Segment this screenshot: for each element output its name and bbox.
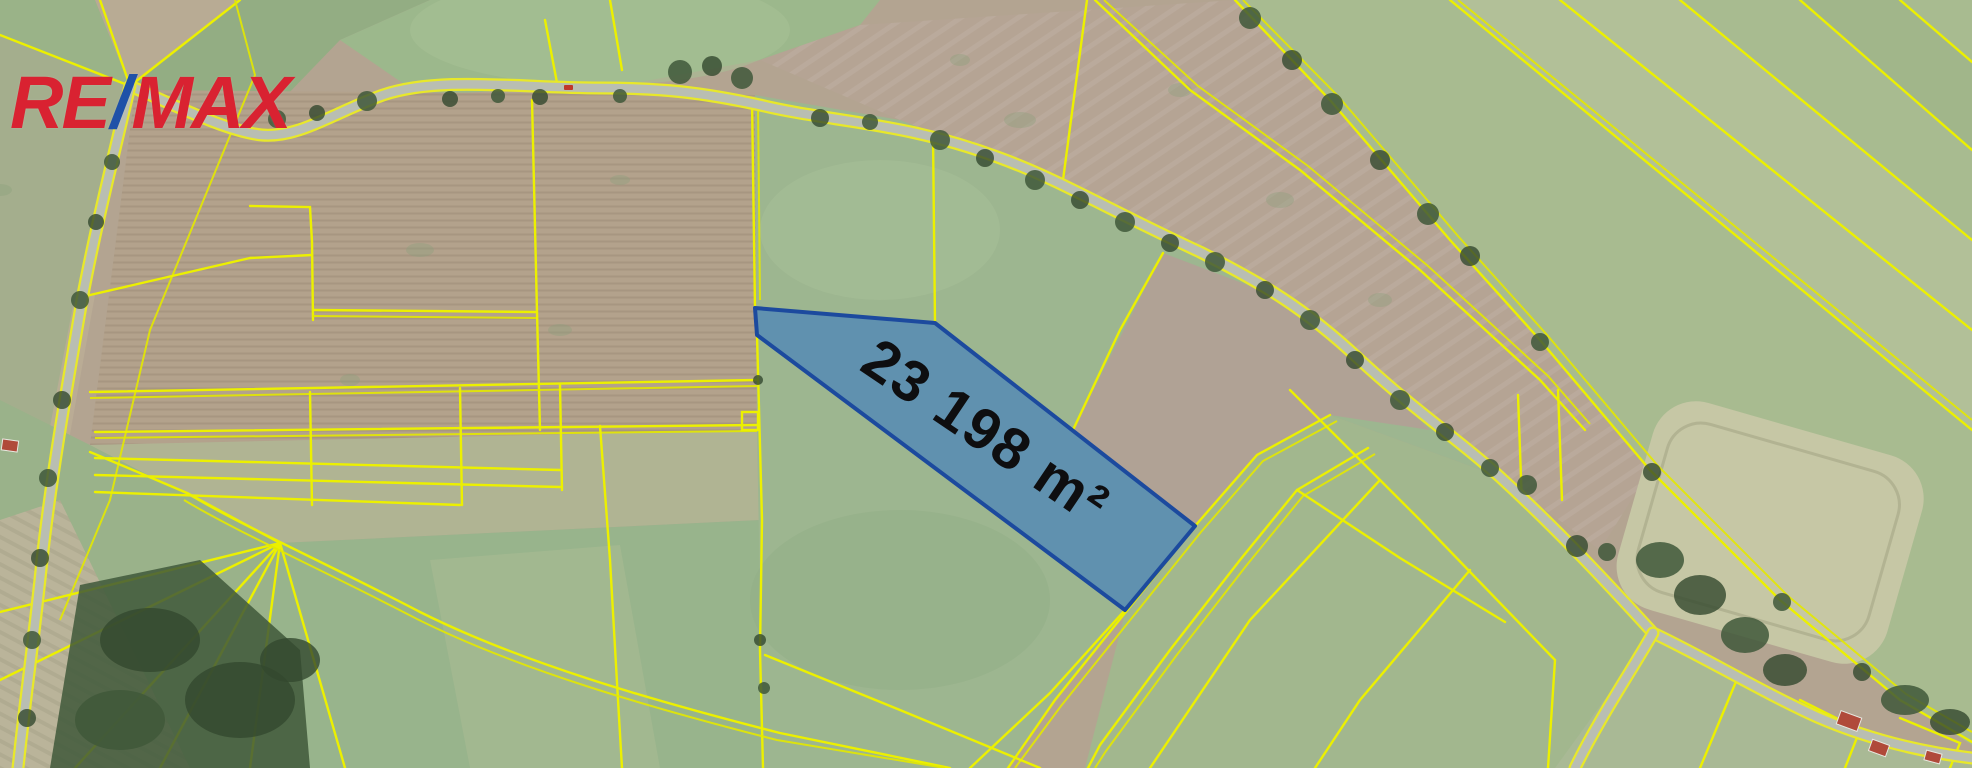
car-on-road: [564, 85, 573, 90]
logo-slash: /: [109, 61, 132, 144]
aerial-map: 23 198 m² RE/MAX: [0, 0, 1972, 768]
logo-max: MAX: [131, 61, 289, 144]
farm-building: [1, 439, 18, 452]
cadastral-map-canvas: 23 198 m²: [0, 0, 1972, 768]
logo-re: RE: [10, 61, 109, 144]
remax-logo: RE/MAX: [10, 66, 290, 140]
